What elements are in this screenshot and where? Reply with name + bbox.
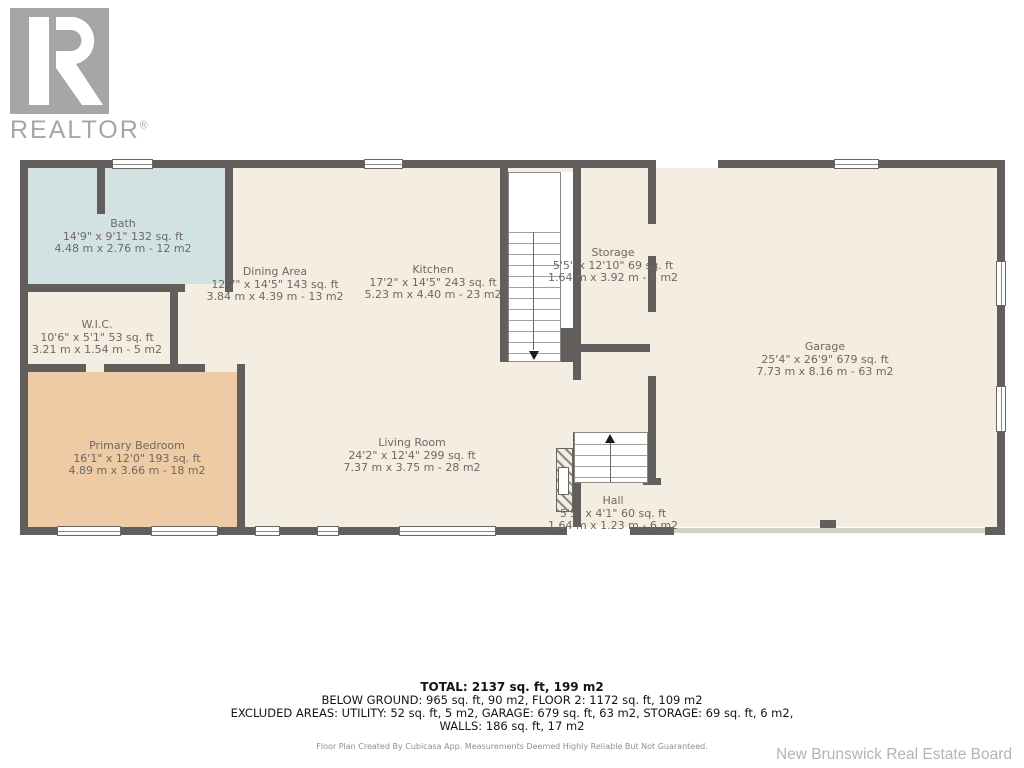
window-garage-right-2 bbox=[996, 386, 1006, 432]
stairs-down-arrow-icon bbox=[529, 351, 539, 360]
room-dims-metric: 1.64 m x 3.92 m - 6 m2 bbox=[548, 272, 678, 285]
room-name: Bath bbox=[54, 218, 191, 231]
basement-stair-rail bbox=[533, 232, 534, 350]
room-name: Kitchen bbox=[364, 264, 501, 277]
floor-plan: Bath 14'9" x 9'1" 132 sq. ft 4.48 m x 2.… bbox=[0, 0, 1024, 768]
bath-stub-wall bbox=[97, 168, 105, 214]
garage-door-opening bbox=[674, 528, 987, 533]
room-dims-metric: 7.73 m x 8.16 m - 63 m2 bbox=[756, 366, 893, 379]
bedroom-right-wall bbox=[237, 364, 245, 527]
understair-niche bbox=[558, 467, 569, 495]
room-name: Garage bbox=[756, 341, 893, 354]
room-label-kitchen: Kitchen 17'2" x 14'5" 243 sq. ft 5.23 m … bbox=[364, 264, 501, 302]
room-label-garage: Garage 25'4" x 26'9" 679 sq. ft 7.73 m x… bbox=[756, 341, 893, 379]
room-dims-metric: 5.23 m x 4.40 m - 23 m2 bbox=[364, 289, 501, 302]
hall-left-wall-top bbox=[573, 344, 581, 380]
wall-right bbox=[997, 160, 1005, 535]
summary-line-4: WALLS: 186 sq. ft, 17 m2 bbox=[0, 720, 1024, 733]
room-name: W.I.C. bbox=[32, 319, 162, 332]
room-dims-metric: 1.64 m x 1.23 m - 6 m2 bbox=[548, 520, 678, 533]
bedroom-top-wall-b bbox=[104, 364, 205, 372]
room-label-primary-bedroom: Primary Bedroom 16'1" x 12'0" 193 sq. ft… bbox=[68, 440, 205, 478]
stair-bottom-chunk bbox=[561, 328, 573, 362]
room-name: Hall bbox=[548, 495, 678, 508]
attribution-text: New Brunswick Real Estate Board bbox=[776, 746, 1012, 764]
window-living-1 bbox=[255, 526, 280, 536]
summary-line-3: EXCLUDED AREAS: UTILITY: 52 sq. ft, 5 m2… bbox=[0, 707, 1024, 720]
storage-bottom-wall bbox=[573, 344, 650, 352]
room-label-hall: Hall 5'5" x 4'1" 60 sq. ft 1.64 m x 1.23… bbox=[548, 495, 678, 533]
wic-right-wall bbox=[170, 292, 178, 364]
room-name: Storage bbox=[548, 247, 678, 260]
window-kitchen bbox=[364, 159, 403, 169]
window-bedroom-1 bbox=[57, 526, 121, 536]
window-bath bbox=[112, 159, 153, 169]
room-dims-metric: 4.48 m x 2.76 m - 12 m2 bbox=[54, 243, 191, 256]
window-living-2 bbox=[317, 526, 339, 536]
garage-left-wall-c bbox=[648, 376, 656, 478]
window-living-3 bbox=[399, 526, 496, 536]
bath-bottom-wall bbox=[20, 284, 185, 292]
wall-left bbox=[20, 160, 28, 535]
bedroom-top-wall-a bbox=[20, 364, 86, 372]
garage-left-wall-a bbox=[648, 168, 656, 224]
window-garage-top bbox=[834, 159, 879, 169]
window-garage-right-1 bbox=[996, 261, 1006, 306]
room-name: Dining Area bbox=[206, 266, 343, 279]
room-dims-metric: 3.84 m x 4.39 m - 13 m2 bbox=[206, 291, 343, 304]
room-name: Living Room bbox=[343, 437, 480, 450]
summary-total: TOTAL: 2137 sq. ft, 199 m2 bbox=[0, 681, 1024, 694]
room-name: Primary Bedroom bbox=[68, 440, 205, 453]
area-summary: TOTAL: 2137 sq. ft, 199 m2 BELOW GROUND:… bbox=[0, 681, 1024, 733]
hall-stair-treads bbox=[575, 444, 647, 482]
room-dims-metric: 3.21 m x 1.54 m - 5 m2 bbox=[32, 344, 162, 357]
room-label-living-room: Living Room 24'2" x 12'4" 299 sq. ft 7.3… bbox=[343, 437, 480, 475]
room-label-bath: Bath 14'9" x 9'1" 132 sq. ft 4.48 m x 2.… bbox=[54, 218, 191, 256]
wall-bottom-corner bbox=[985, 527, 1005, 535]
floor-plan-page: REALTOR® bbox=[0, 0, 1024, 768]
room-label-wic: W.I.C. 10'6" x 5'1" 53 sq. ft 3.21 m x 1… bbox=[32, 319, 162, 357]
stairs-up-arrow-icon bbox=[605, 434, 615, 443]
room-label-dining: Dining Area 12'7" x 14'5" 143 sq. ft 3.8… bbox=[206, 266, 343, 304]
garage-door-stub bbox=[820, 520, 836, 528]
room-dims-metric: 4.89 m x 3.66 m - 18 m2 bbox=[68, 465, 205, 478]
room-dims-metric: 7.37 m x 3.75 m - 28 m2 bbox=[343, 462, 480, 475]
room-label-storage: Storage 5'5" x 12'10" 69 sq. ft 1.64 m x… bbox=[548, 247, 678, 285]
window-bedroom-2 bbox=[151, 526, 218, 536]
summary-line-2: BELOW GROUND: 965 sq. ft, 90 m2, FLOOR 2… bbox=[0, 694, 1024, 707]
